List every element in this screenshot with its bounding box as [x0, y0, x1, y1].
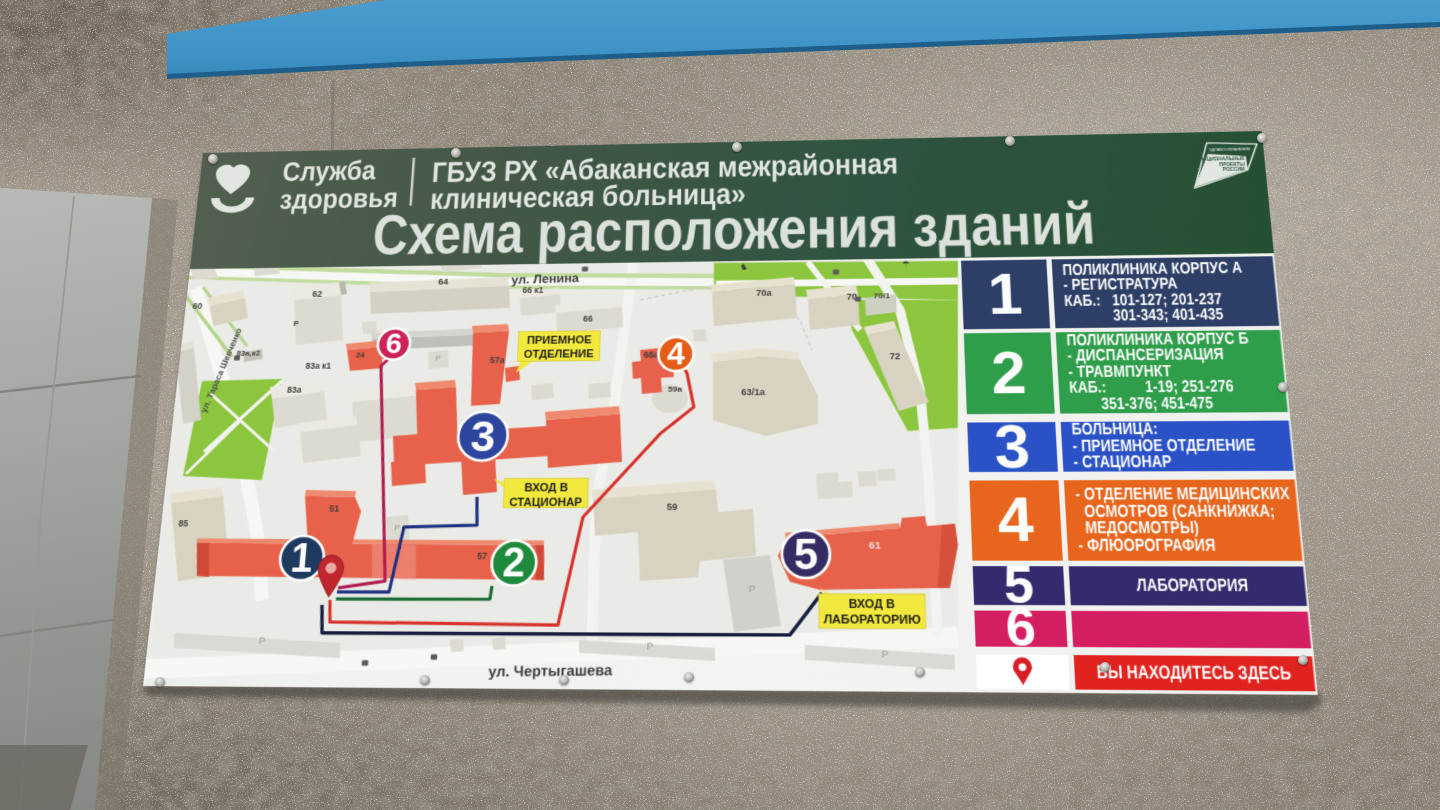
svg-text:51: 51: [329, 504, 340, 514]
svg-text:ПРИЕМНОЕ: ПРИЕМНОЕ: [527, 335, 593, 348]
svg-text:64: 64: [438, 278, 449, 288]
svg-text:ул. Ленина: ул. Ленина: [511, 272, 580, 287]
svg-text:Р: Р: [435, 353, 441, 363]
svg-text:Служба: Служба: [281, 156, 377, 187]
svg-text:ул. Чертыгашева: ул. Чертыгашева: [488, 662, 612, 681]
svg-text:ЛАБОРАТОРИЮ: ЛАБОРАТОРИЮ: [824, 613, 921, 627]
svg-text:62: 62: [312, 289, 323, 299]
svg-text:РОССИИ: РОССИИ: [1223, 167, 1245, 173]
svg-text:70а: 70а: [756, 288, 772, 298]
svg-text:СТАЦИОНАР: СТАЦИОНАР: [509, 497, 583, 510]
svg-text:Р: Р: [394, 523, 400, 533]
svg-text:ВХОД В: ВХОД В: [524, 482, 568, 495]
svg-text:24: 24: [355, 350, 365, 360]
svg-text:Р: Р: [293, 319, 299, 329]
svg-text:Р: Р: [881, 649, 888, 660]
svg-text:ВХОД В: ВХОД В: [849, 598, 896, 612]
svg-text:60: 60: [192, 302, 203, 312]
svg-text:61: 61: [869, 539, 881, 551]
svg-text:68а: 68а: [644, 350, 660, 360]
svg-text:72: 72: [889, 351, 900, 361]
svg-text:♞: ♞: [740, 262, 748, 272]
svg-text:66 к1: 66 к1: [522, 285, 544, 295]
svg-text:4: 4: [667, 337, 686, 371]
svg-text:Схема расположения зданий: Схема расположения зданий: [371, 191, 1097, 268]
svg-text:ЗДРАВООХРАНЕНИЕ: ЗДРАВООХРАНЕНИЕ: [1209, 148, 1252, 153]
svg-text:ОТДЕЛЕНИЕ: ОТДЕЛЕНИЕ: [523, 348, 594, 361]
svg-text:59: 59: [667, 502, 678, 513]
svg-text:6: 6: [385, 328, 404, 361]
svg-text:70/1: 70/1: [874, 290, 891, 300]
svg-text:5: 5: [794, 529, 819, 578]
svg-text:57а: 57а: [490, 355, 506, 365]
svg-text:Р: Р: [259, 636, 266, 647]
svg-text:57: 57: [477, 551, 488, 562]
svg-text:☂: ☂: [902, 259, 910, 269]
svg-text:2: 2: [502, 541, 526, 586]
svg-text:83а: 83а: [287, 385, 303, 395]
svg-text:83а к1: 83а к1: [305, 361, 332, 371]
svg-text:63/1а: 63/1а: [741, 387, 765, 397]
svg-text:66: 66: [583, 314, 593, 324]
svg-text:59а: 59а: [668, 384, 683, 394]
svg-text:Р: Р: [647, 641, 654, 652]
svg-text:3: 3: [469, 413, 496, 462]
svg-text:Р: Р: [749, 583, 756, 594]
svg-text:1: 1: [289, 537, 315, 582]
